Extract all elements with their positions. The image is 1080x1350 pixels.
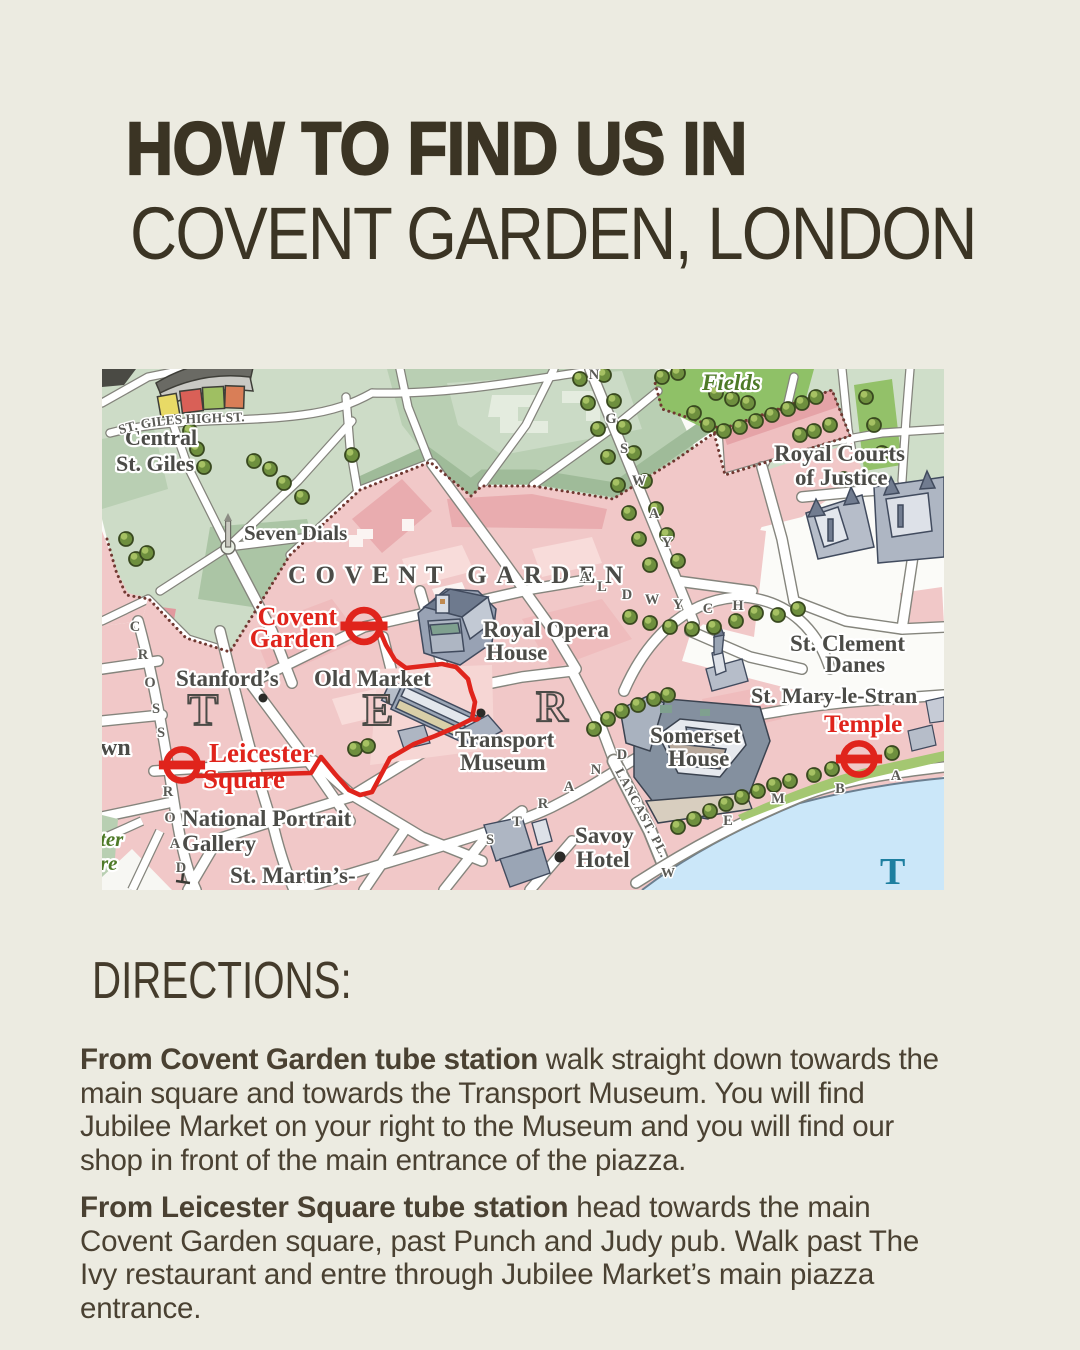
svg-text:L: L (597, 579, 607, 595)
svg-text:Museum: Museum (460, 750, 546, 775)
svg-text:A: A (891, 768, 902, 784)
svg-text:D: D (176, 860, 186, 876)
svg-text:S: S (157, 725, 165, 741)
svg-text:W: W (645, 592, 660, 608)
svg-text:Danes: Danes (825, 652, 885, 677)
svg-text:O: O (164, 810, 175, 826)
svg-text:Gallery: Gallery (182, 831, 257, 856)
svg-text:Seven Dials: Seven Dials (244, 521, 347, 545)
svg-text:R: R (536, 682, 569, 731)
svg-text:N: N (591, 762, 602, 778)
svg-text:T: T (512, 814, 522, 830)
svg-text:T: T (188, 684, 219, 735)
svg-text:Garden: Garden (250, 624, 336, 653)
svg-text:Royal Opera: Royal Opera (483, 617, 609, 642)
svg-text:C: C (703, 601, 713, 617)
svg-text:R: R (138, 647, 149, 663)
svg-text:Royal Courts: Royal Courts (774, 441, 905, 466)
svg-text:D: D (622, 587, 632, 603)
svg-text:wn: wn (102, 735, 131, 761)
svg-text:H: H (732, 598, 744, 614)
svg-text:E: E (723, 813, 733, 829)
svg-text:House: House (668, 746, 729, 771)
svg-text:Y: Y (662, 535, 673, 551)
svg-text:W: W (632, 473, 647, 489)
svg-text:re: re (102, 851, 118, 875)
svg-text:S: S (620, 441, 628, 457)
svg-text:E: E (363, 684, 394, 735)
svg-text:D: D (617, 747, 627, 763)
svg-text:St. Martin’s-: St. Martin’s- (230, 863, 356, 888)
svg-text:O: O (144, 675, 155, 691)
svg-text:Hotel: Hotel (576, 847, 630, 872)
svg-text:B: B (835, 781, 845, 797)
svg-text:G: G (605, 411, 616, 427)
svg-text:N: N (589, 369, 600, 383)
svg-text:House: House (486, 640, 547, 665)
svg-text:T: T (880, 851, 905, 890)
svg-text:Savoy: Savoy (575, 823, 634, 848)
svg-text:M: M (771, 791, 785, 807)
svg-text:of Justice: of Justice (795, 465, 888, 490)
svg-text:W: W (661, 866, 675, 881)
svg-text:Y: Y (673, 597, 684, 613)
svg-text:A: A (580, 569, 591, 585)
svg-text:R: R (163, 784, 174, 800)
svg-text:S: S (486, 832, 494, 848)
svg-text:A: A (170, 836, 181, 852)
svg-text:A: A (649, 506, 660, 522)
svg-text:A: A (564, 779, 575, 795)
svg-text:S: S (152, 701, 160, 717)
svg-text:Temple: Temple (824, 711, 902, 738)
svg-text:Somerset: Somerset (650, 723, 741, 748)
svg-text:National Portrait: National Portrait (182, 806, 352, 831)
svg-text:R: R (538, 796, 549, 812)
svg-text:Square: Square (203, 764, 285, 794)
svg-text:ter: ter (102, 827, 124, 851)
svg-text:C: C (130, 619, 140, 635)
svg-text:Fields: Fields (701, 370, 761, 395)
svg-text:St. Giles: St. Giles (116, 451, 195, 476)
svg-text:St. Mary-le-Stran: St. Mary-le-Stran (751, 683, 917, 708)
